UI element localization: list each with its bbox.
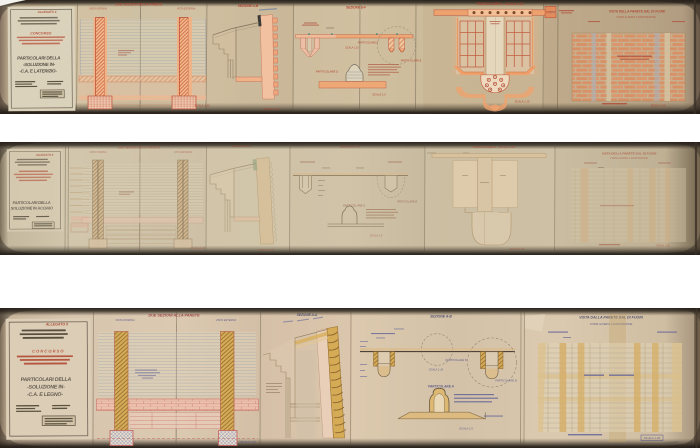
- svg-text:SCALA 1:10: SCALA 1:10: [345, 46, 359, 49]
- svg-text:SCALA 1:10: SCALA 1:10: [429, 368, 444, 372]
- svg-text:PARTICOLARE B: PARTICOLARE B: [397, 200, 417, 203]
- svg-text:ALLEGATO 5: ALLEGATO 5: [45, 322, 69, 326]
- svg-text:DUE SEZIONI ALLA PARETE: DUE SEZIONI ALLA PARETE: [148, 313, 200, 317]
- svg-text:PARTICOLARE B: PARTICOLARE B: [495, 378, 516, 382]
- svg-text:SEZIONE A-B: SEZIONE A-B: [232, 144, 252, 148]
- svg-text:ALLEGATO 4: ALLEGATO 4: [35, 153, 54, 157]
- svg-text:VISTA ESTERNA: VISTA ESTERNA: [216, 318, 236, 322]
- svg-text:SCALA 1:5: SCALA 1:5: [372, 92, 386, 96]
- svg-text:-C.A. E LATERIZIO-: -C.A. E LATERIZIO-: [19, 68, 58, 73]
- svg-text:SEZIONE C-D: SEZIONE C-D: [340, 145, 360, 149]
- svg-text:VISTA ESTERNA: VISTA ESTERNA: [177, 8, 196, 11]
- svg-text:VISTA INTERNA: VISTA INTERNA: [89, 151, 107, 154]
- svg-text:SCALA 1:10: SCALA 1:10: [194, 104, 210, 108]
- svg-text:PARTICOLARE A - SCALA 1:10: PARTICOLARE A - SCALA 1:10: [477, 2, 524, 6]
- svg-text:PARTICOLARE A: PARTICOLARE A: [428, 384, 454, 388]
- svg-text:CORSI ALTERNI A DISPOSIZION: CORSI ALTERNI A DISPOSIZIONE: [610, 157, 648, 160]
- svg-text:SCALA 1:5: SCALA 1:5: [459, 426, 473, 430]
- svg-text:-C.A. E LEGNO-: -C.A. E LEGNO-: [26, 392, 63, 398]
- svg-text:SCALA 1:10: SCALA 1:10: [515, 100, 530, 104]
- svg-text:-SOLUZIONE IN-: -SOLUZIONE IN-: [23, 62, 57, 67]
- svg-text:SCALA 1:20: SCALA 1:20: [644, 436, 661, 440]
- svg-text:SEZIONE A-A: SEZIONE A-A: [297, 313, 318, 317]
- svg-text:DUE SEZIONI DELLA PARETE: DUE SEZIONI DELLA PARETE: [118, 146, 162, 150]
- svg-text:VISTA DELLA PARETE DAL DI FUOR: VISTA DELLA PARETE DAL DI FUORI: [609, 10, 665, 14]
- svg-text:SCALA 1:50: SCALA 1:50: [651, 104, 666, 108]
- svg-text:SCALA 1:5: SCALA 1:5: [370, 235, 383, 238]
- svg-text:PARTICOLARE B: PARTICOLARE B: [401, 58, 422, 62]
- svg-text:VISTA INTERNA: VISTA INTERNA: [115, 318, 135, 322]
- svg-text:PARTICOLARI DELLA: PARTICOLARI DELLA: [20, 377, 72, 383]
- svg-text:VISTA DELLA PARETE DAL DI FUOR: VISTA DELLA PARETE DAL DI FUORI: [602, 151, 657, 155]
- svg-text:SEZIONE E-F: SEZIONE E-F: [346, 6, 367, 10]
- svg-text:PARTICOLARE D: PARTICOLARE D: [316, 70, 338, 74]
- svg-text:VISTA INTERNA: VISTA INTERNA: [89, 8, 107, 11]
- svg-text:SCALA 1:10: SCALA 1:10: [510, 247, 525, 251]
- svg-text:PARTICOLARE E: PARTICOLARE E: [358, 41, 379, 45]
- svg-text:-SOLUZIONE IN-: -SOLUZIONE IN-: [27, 384, 66, 390]
- svg-text:C O N C O R S O: C O N C O R S O: [32, 348, 64, 353]
- svg-text:ALLEGATO 4: ALLEGATO 4: [37, 10, 57, 14]
- svg-text:SCALA 1:50: SCALA 1:50: [656, 244, 670, 247]
- svg-text:SOLUZIONE IN ACCIAIO: SOLUZIONE IN ACCIAIO: [10, 205, 53, 210]
- svg-text:PARTICOLARI DELLA: PARTICOLARI DELLA: [17, 55, 62, 60]
- svg-text:SCALA 1:10: SCALA 1:10: [240, 440, 256, 444]
- svg-text:SCALA 1:10: SCALA 1:10: [263, 107, 279, 111]
- svg-text:PARTICOLARI DELLA: PARTICOLARI DELLA: [12, 200, 51, 205]
- svg-text:PARTICOLARE B: PARTICOLARE B: [445, 358, 466, 362]
- svg-text:CORSI ALTERNI A DISPOSIZION: CORSI ALTERNI A DISPOSIZIONE: [616, 16, 656, 19]
- svg-text:SCALA 1:10: SCALA 1:10: [191, 246, 206, 250]
- svg-text:SEZIONE A-B: SEZIONE A-B: [238, 4, 259, 8]
- svg-text:SCALA 1:10: SCALA 1:10: [259, 248, 274, 252]
- svg-text:SEZIONE A-B: SEZIONE A-B: [430, 315, 452, 319]
- svg-text:VISTA ESTERNA: VISTA ESTERNA: [174, 151, 192, 154]
- svg-text:CONCORSO: CONCORSO: [30, 31, 51, 35]
- svg-text:PARTICOLARE A - SCALA 1:10: PARTICOLARE A - SCALA 1:10: [473, 145, 516, 149]
- svg-text:DUE SEZIONI DELLA PARETE: DUE SEZIONI DELLA PARETE: [116, 3, 164, 7]
